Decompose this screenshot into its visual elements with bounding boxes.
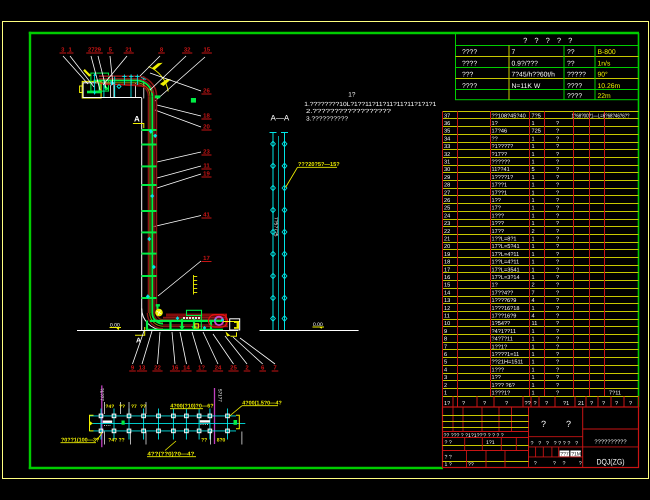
svg-text:?1M: ?1M [571, 452, 581, 458]
svg-text:?: ? [556, 244, 559, 250]
svg-text:?: ? [590, 401, 593, 407]
svg-text:1: 1 [532, 267, 535, 273]
svg-text:18: 18 [444, 260, 450, 266]
svg-text:?: ? [556, 360, 559, 366]
svg-text:????: ???? [567, 93, 582, 100]
svg-text:30: 30 [444, 167, 450, 173]
svg-text:7: 7 [532, 290, 535, 296]
svg-text:DQJ(ZG): DQJ(ZG) [597, 458, 625, 467]
svg-text:1: 1 [532, 237, 535, 243]
svg-text:?: ? [556, 229, 559, 235]
svg-text:14: 14 [183, 365, 190, 372]
svg-text:11??41: 11??41 [492, 167, 510, 173]
svg-text:?: ? [534, 461, 537, 467]
svg-text:1: 1 [532, 221, 535, 227]
svg-text:11: 11 [444, 314, 450, 320]
svg-text:1: 1 [444, 391, 447, 397]
svg-text:7: 7 [444, 344, 447, 350]
svg-text:5: 5 [532, 167, 535, 173]
svg-text:29: 29 [444, 175, 450, 181]
svg-text:?4?7?11: ?4?7?11 [492, 337, 513, 343]
svg-text:?: ? [556, 391, 559, 397]
svg-text:1: 1 [532, 244, 535, 250]
svg-text:1?: 1? [492, 283, 498, 289]
svg-text:41: 41 [203, 212, 210, 219]
svg-text:1?: 1? [198, 365, 205, 372]
svg-text:?: ? [556, 275, 559, 281]
svg-text:1???: 1??? [492, 367, 504, 373]
svg-text:16: 16 [172, 365, 179, 372]
svg-text:8: 8 [444, 337, 447, 343]
svg-text:17??4??: 17??4?? [492, 290, 514, 296]
svg-text:17??: 17?? [492, 229, 504, 235]
svg-text:?: ? [556, 344, 559, 350]
svg-text:1??: 1?? [492, 198, 501, 204]
svg-text:?: ? [556, 329, 559, 335]
svg-text:1????1=11: 1????1=11 [492, 352, 520, 358]
svg-text:26: 26 [203, 88, 210, 95]
svg-text:?: ? [556, 129, 559, 135]
svg-text:17?L=3541: 17?L=3541 [492, 267, 520, 273]
svg-text:17??1: 17??1 [492, 183, 508, 189]
svg-text:1??1?: 1??1? [492, 344, 508, 350]
svg-text:?: ? [483, 401, 486, 407]
svg-text:????: ???? [462, 60, 477, 67]
svg-text:11: 11 [203, 163, 210, 170]
svg-text:1????6?9: 1????6?9 [492, 298, 517, 304]
svg-text:8?0: 8?0 [217, 438, 226, 444]
svg-text:??: ?? [525, 401, 531, 407]
svg-text:17: 17 [444, 267, 450, 273]
svg-text:?: ? [556, 175, 559, 181]
svg-text:28: 28 [444, 183, 450, 189]
svg-text:?: ? [556, 260, 559, 266]
svg-text:?: ? [556, 213, 559, 219]
svg-text:?: ? [556, 352, 559, 358]
svg-text:23: 23 [444, 221, 450, 227]
svg-text:21: 21 [444, 237, 450, 243]
svg-text:31: 31 [444, 160, 450, 166]
svg-text:??: ?? [201, 438, 207, 444]
svg-text:N=11K W: N=11K W [512, 83, 541, 90]
svg-text:?: ? [556, 337, 559, 343]
svg-text:2: 2 [444, 383, 447, 389]
svg-text:??????????: ?????????? [594, 439, 627, 446]
svg-text:19: 19 [444, 252, 450, 258]
svg-text:1: 1 [532, 136, 535, 142]
svg-text:?17??: ?17?? [492, 152, 508, 158]
svg-text:1: 1 [532, 213, 535, 219]
svg-text:1: 1 [532, 252, 535, 258]
svg-text:? ?: ? ? [445, 440, 452, 446]
svg-text:????: ???? [462, 83, 477, 90]
svg-text:?????: ????? [567, 72, 586, 79]
svg-text:?: ? [556, 383, 559, 389]
svg-text:B-800: B-800 [598, 49, 616, 56]
svg-text:?: ? [545, 401, 548, 407]
svg-text:?: ? [563, 461, 566, 467]
svg-text:25: 25 [230, 365, 237, 372]
svg-text:11: 11 [532, 321, 538, 327]
svg-text:23: 23 [203, 149, 210, 156]
svg-text:7?11: 7?11 [609, 391, 621, 397]
svg-text:4: 4 [444, 367, 447, 373]
svg-text:?: ? [556, 136, 559, 142]
svg-text:??: ?? [567, 60, 575, 67]
svg-text:1: 1 [532, 121, 535, 127]
svg-text:32: 32 [444, 152, 450, 158]
svg-text:?: ? [556, 167, 559, 173]
svg-text:5?1?7: 5?1?7 [218, 389, 223, 402]
svg-text:13: 13 [444, 298, 450, 304]
svg-text:34: 34 [444, 136, 450, 142]
svg-text:1: 1 [532, 144, 535, 150]
svg-text:1: 1 [532, 198, 535, 204]
svg-text:17: 17 [203, 255, 210, 262]
svg-text:26: 26 [444, 198, 450, 204]
svg-text:1: 1 [532, 360, 535, 366]
svg-text:??: ?? [140, 404, 146, 410]
svg-text:1??: 1?? [492, 375, 501, 381]
svg-text:29: 29 [94, 47, 101, 54]
svg-text:19: 19 [203, 171, 210, 178]
svg-text:?: ? [556, 183, 559, 189]
svg-text:?: ? [556, 121, 559, 127]
svg-text:16: 16 [444, 275, 450, 281]
svg-text:1: 1 [532, 260, 535, 266]
svg-text:1: 1 [532, 344, 535, 350]
svg-text:?: ? [629, 401, 632, 407]
svg-text:1: 1 [532, 175, 535, 181]
svg-text:10: 10 [444, 321, 450, 327]
svg-text:??7: ??7 [560, 452, 569, 458]
svg-text:1: 1 [532, 391, 535, 397]
svg-text:22: 22 [154, 365, 161, 372]
svg-text:?: ? [556, 144, 559, 150]
svg-text:1??L=8?1: 1??L=8?1 [492, 237, 517, 243]
svg-text:1: 1 [532, 206, 535, 212]
svg-text:7?5: 7?5 [532, 113, 541, 119]
svg-text:? ? ? ???? ?: ? ? ? ???? ? [531, 441, 580, 447]
svg-text:1????1?: 1????1? [492, 175, 514, 181]
svg-text:1?54??: 1?54?? [492, 321, 511, 327]
svg-text:?1???7?: ?1???7? [492, 144, 514, 150]
svg-text:?4?1??11: ?4?1??11 [492, 329, 516, 335]
svg-text:?: ? [556, 306, 559, 312]
svg-text:?4?: ?4? [105, 404, 114, 410]
svg-text:?: ? [505, 401, 508, 407]
svg-text:1?68?00?1—L=6?68?46?6??: 1?68?00?1—L=6?68?46?6?? [572, 113, 630, 119]
svg-text:0.9?/???: 0.9?/??? [512, 60, 539, 67]
svg-text:25: 25 [444, 206, 450, 212]
svg-text:?: ? [556, 198, 559, 204]
svg-text:?: ? [556, 375, 559, 381]
svg-text:1??? ?6?: 1??? ?6? [492, 383, 515, 389]
svg-text:7?45/h??60t/h: 7?45/h??60t/h [512, 72, 556, 79]
svg-text:?7: ?7 [131, 404, 137, 410]
svg-text:????: ???? [567, 83, 582, 90]
svg-text:1: 1 [532, 183, 535, 189]
svg-text:?: ? [602, 401, 605, 407]
svg-text:???: ??? [462, 72, 474, 79]
svg-text:1???16?18: 1???16?18 [492, 306, 520, 312]
svg-text:20: 20 [203, 124, 210, 131]
svg-text:17?L=4?11: 17?L=4?11 [492, 252, 520, 258]
svg-text:4: 4 [532, 314, 535, 320]
svg-text:17?: 17? [492, 206, 501, 212]
svg-text:7: 7 [512, 49, 516, 56]
svg-text:14: 14 [444, 290, 450, 296]
svg-text:?: ? [462, 401, 465, 407]
svg-text:33: 33 [444, 144, 450, 150]
svg-text:17??1: 17??1 [492, 190, 508, 196]
svg-text:1???: 1??? [492, 213, 504, 219]
svg-text:12: 12 [444, 306, 450, 312]
svg-text:10.26m: 10.26m [598, 83, 621, 90]
svg-text:?: ? [556, 290, 559, 296]
svg-text:15: 15 [203, 47, 210, 54]
svg-text:1: 1 [532, 160, 535, 166]
svg-text:1?: 1? [348, 92, 356, 99]
svg-text:1???1?: 1???1? [492, 391, 511, 397]
svg-text:1?: 1? [492, 121, 498, 127]
svg-text:?: ? [556, 321, 559, 327]
svg-text:17?L=5?41: 17?L=5?41 [492, 244, 520, 250]
svg-text:?: ? [556, 314, 559, 320]
svg-text:A: A [134, 115, 140, 124]
svg-text:17?L=3?14: 17?L=3?14 [492, 275, 520, 281]
svg-text:3: 3 [444, 375, 447, 381]
svg-text:?: ? [556, 152, 559, 158]
svg-text:??: ?? [492, 136, 498, 142]
svg-text:22: 22 [444, 229, 450, 235]
svg-text:?: ? [556, 190, 559, 196]
svg-text:1??L=4?11: 1??L=4?11 [492, 260, 520, 266]
svg-text:?: ? [556, 367, 559, 373]
svg-text:??????: ?????? [492, 160, 511, 166]
svg-text:5: 5 [444, 360, 447, 366]
svg-text:32: 32 [184, 47, 191, 54]
svg-text:1: 1 [532, 337, 535, 343]
svg-text:1: 1 [532, 375, 535, 381]
svg-text:27: 27 [444, 190, 450, 196]
svg-text:21: 21 [125, 47, 132, 54]
svg-text:?4? ??: ?4? ?? [108, 438, 124, 444]
svg-text:??: ?? [567, 49, 575, 56]
svg-text:?: ? [556, 267, 559, 273]
svg-text:1.????????10L?1??11?11?11?11?1: 1.????????10L?1??11?11?11?11?11?1?1?1 [304, 101, 437, 108]
svg-text:1???: 1??? [492, 221, 504, 227]
svg-text:A—A: A—A [271, 114, 290, 123]
svg-text:?: ? [556, 283, 559, 289]
svg-text:1: 1 [532, 275, 535, 281]
svg-text:?: ? [556, 252, 559, 258]
svg-text:20: 20 [444, 244, 450, 250]
svg-text:?? ??? ? ?1?1??'? ? ? ? ?: ?? ??? ? ?1?1??'? ? ? ? ? [444, 433, 504, 439]
svg-text:?: ? [579, 461, 582, 467]
svg-text:?: ? [556, 160, 559, 166]
svg-text:15: 15 [444, 283, 450, 289]
svg-text:2.??????????????????: 2.?????????????????? [306, 108, 392, 115]
svg-text:18: 18 [203, 113, 210, 120]
svg-text:?: ? [556, 237, 559, 243]
svg-text:3.??????????: 3.?????????? [306, 116, 349, 123]
svg-text:1: 1 [532, 352, 535, 358]
svg-text:1?1: 1?1 [486, 440, 495, 446]
svg-text:?: ? [556, 206, 559, 212]
svg-text:??: ?? [119, 404, 125, 410]
svg-text:?1: ?1 [563, 401, 569, 407]
svg-text:?: ? [553, 461, 556, 467]
svg-text:35: 35 [444, 129, 450, 135]
svg-text:1: 1 [532, 190, 535, 196]
svg-text:2: 2 [532, 229, 535, 235]
svg-text:21: 21 [578, 401, 584, 407]
svg-text:?: ? [556, 221, 559, 227]
svg-text:24: 24 [215, 365, 222, 372]
svg-text:? ? ? ? ?: ? ? ? ? ? [523, 36, 575, 45]
svg-text:24: 24 [444, 213, 450, 219]
svg-text:??: ?? [468, 462, 474, 468]
svg-text:? ?: ? ? [445, 455, 452, 461]
svg-text:1n/s: 1n/s [598, 60, 611, 67]
svg-text:??21H=1511: ??21H=1511 [492, 360, 524, 366]
svg-text:1?: 1? [444, 401, 450, 407]
svg-text:13: 13 [139, 365, 146, 372]
svg-text:?1??7: ?1??7 [100, 388, 105, 401]
svg-text:?: ? [615, 401, 618, 407]
svg-text:725: 725 [532, 129, 541, 135]
svg-text:1: 1 [532, 306, 535, 312]
svg-text:6: 6 [444, 352, 447, 358]
svg-text:?: ? [534, 401, 537, 407]
svg-text:?: ? [541, 419, 546, 429]
svg-text:1 ?: 1 ? [445, 462, 452, 468]
svg-text:36: 36 [444, 121, 450, 127]
svg-text:??108?45?40: ??108?45?40 [492, 113, 526, 119]
svg-text:7?5?7?5: 7?5?7?5 [273, 217, 279, 237]
svg-text:1: 1 [532, 329, 535, 335]
svg-text:?: ? [556, 298, 559, 304]
svg-text:90°: 90° [598, 72, 609, 79]
svg-text:????: ???? [462, 49, 477, 56]
svg-text:37: 37 [444, 113, 450, 119]
svg-text:1: 1 [532, 152, 535, 158]
svg-text:1: 1 [532, 383, 535, 389]
svg-text:2: 2 [532, 283, 535, 289]
svg-text:4: 4 [532, 298, 535, 304]
svg-text:1: 1 [532, 367, 535, 373]
svg-text:?: ? [566, 419, 571, 429]
svg-text:17??16?9: 17??16?9 [492, 314, 517, 320]
svg-text:17?46: 17?46 [492, 129, 508, 135]
svg-text:9: 9 [444, 329, 447, 335]
svg-text:22m: 22m [598, 93, 612, 100]
